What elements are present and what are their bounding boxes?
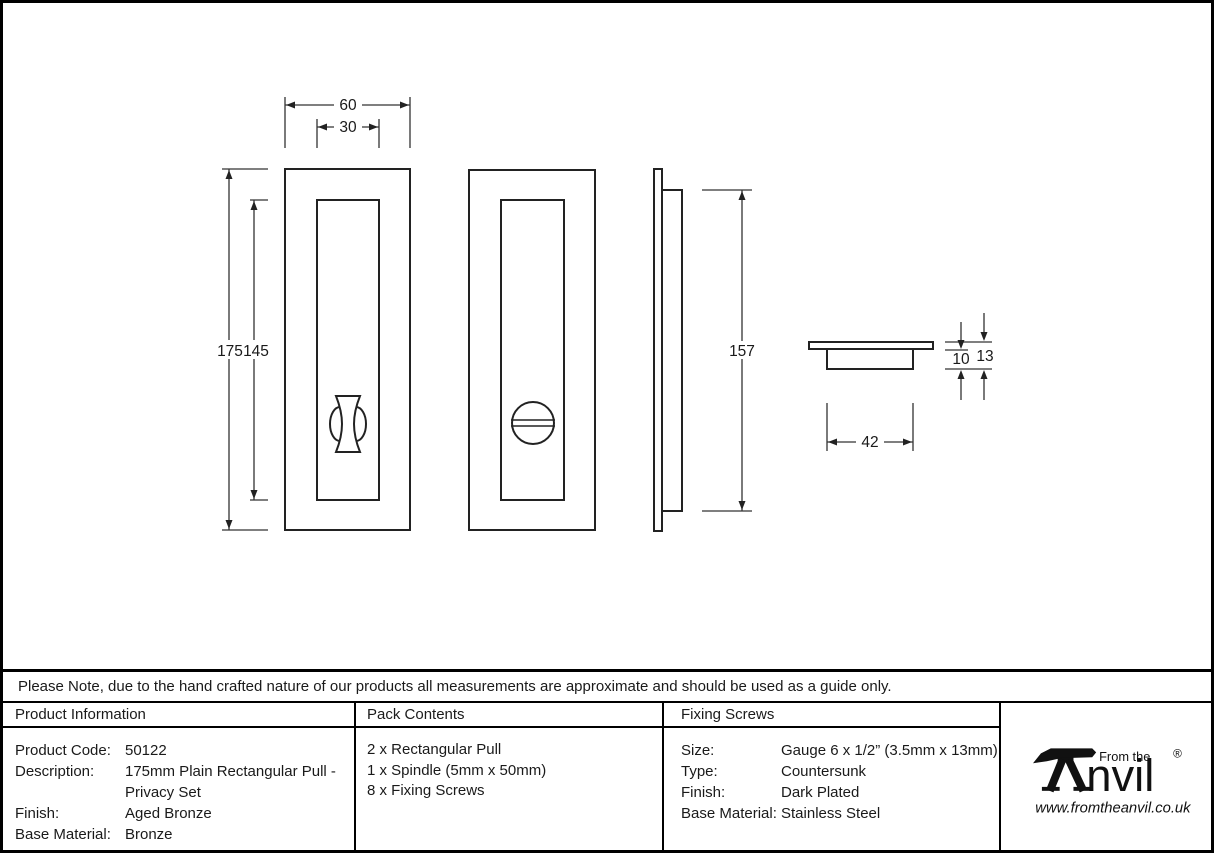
row-label: Type:	[681, 761, 781, 782]
thumbturn-shape	[336, 396, 360, 452]
dimension-arrowheads	[226, 102, 988, 530]
screw-type-row: Type: Countersunk	[681, 761, 999, 782]
product-info-table: Product Information Product Code: 50122 …	[0, 703, 1214, 853]
dim-total-depth: 13	[976, 348, 993, 365]
row-label	[15, 782, 125, 803]
row-value: 50122	[125, 740, 167, 761]
dimension-label-backgrounds	[213, 96, 997, 450]
brand-logo-cell: From the nvil ® www.fromtheanvil.co.uk	[1001, 703, 1214, 853]
product-drawing-sheet: 60 30 175 145 157 42 10 13 Please Note, …	[0, 0, 1214, 853]
pack-contents-header: Pack Contents	[356, 703, 662, 728]
row-label: Finish:	[15, 803, 125, 824]
fixing-screws-column: Fixing Screws Size: Gauge 6 x 1/2” (3.5m…	[664, 703, 1001, 853]
row-value: Bronze	[125, 824, 173, 845]
dimension-labels: 60 30 175 145 157 42 10 13	[217, 97, 994, 451]
logo-brand-text: nvil	[1086, 749, 1154, 800]
row-value: Countersunk	[781, 761, 866, 782]
dim-width-inner: 30	[339, 119, 357, 136]
screw-size-row: Size: Gauge 6 x 1/2” (3.5mm x 13mm)	[681, 740, 999, 761]
product-information-body: Product Code: 50122 Description: 175mm P…	[0, 728, 354, 845]
screw-base-material-row: Base Material: Stainless Steel	[681, 803, 999, 824]
row-label: Description:	[15, 761, 125, 782]
product-information-column: Product Information Product Code: 50122 …	[0, 703, 356, 853]
pull-side-view	[654, 169, 682, 531]
dim-cup-depth: 10	[952, 351, 970, 368]
logo-url-text: www.fromtheanvil.co.uk	[1035, 800, 1192, 816]
fixing-screws-header: Fixing Screws	[664, 703, 999, 728]
pull-front-coinslot-view	[469, 170, 595, 530]
row-label: Base Material:	[681, 803, 781, 824]
pack-item: 8 x Fixing Screws	[367, 781, 662, 802]
row-value: Privacy Set	[125, 782, 201, 803]
pack-item: 2 x Rectangular Pull	[367, 740, 662, 761]
row-value: Gauge 6 x 1/2” (3.5mm x 13mm)	[781, 740, 998, 761]
technical-drawing: 60 30 175 145 157 42 10 13	[0, 0, 1214, 672]
row-label: Base Material:	[15, 824, 125, 845]
product-information-header: Product Information	[0, 703, 354, 728]
dimension-lines	[222, 97, 992, 530]
pack-contents-column: Pack Contents 2 x Rectangular Pull 1 x S…	[356, 703, 664, 853]
pack-item: 1 x Spindle (5mm x 50mm)	[367, 761, 662, 782]
description-row-line2: Privacy Set	[15, 782, 354, 803]
dim-width-outer: 60	[339, 97, 357, 114]
row-value: Aged Bronze	[125, 803, 212, 824]
base-material-row: Base Material: Bronze	[15, 824, 354, 845]
pack-contents-body: 2 x Rectangular Pull 1 x Spindle (5mm x …	[356, 728, 662, 802]
screw-finish-row: Finish: Dark Plated	[681, 782, 999, 803]
row-label: Size:	[681, 740, 781, 761]
row-value: Dark Plated	[781, 782, 859, 803]
from-the-anvil-logo: From the nvil ® www.fromtheanvil.co.uk	[1002, 706, 1213, 851]
measurement-note-text: Please Note, due to the hand crafted nat…	[18, 678, 892, 695]
fixing-screws-body: Size: Gauge 6 x 1/2” (3.5mm x 13mm) Type…	[664, 728, 999, 824]
dim-cup-width: 42	[861, 434, 878, 451]
description-row: Description: 175mm Plain Rectangular Pul…	[15, 761, 354, 782]
dim-height-inner: 145	[243, 343, 269, 360]
row-value: Stainless Steel	[781, 803, 880, 824]
dim-side-height: 157	[729, 343, 755, 360]
row-value: 175mm Plain Rectangular Pull -	[125, 761, 336, 782]
registered-trademark-symbol: ®	[1173, 746, 1182, 760]
row-label: Finish:	[681, 782, 781, 803]
finish-row: Finish: Aged Bronze	[15, 803, 354, 824]
coin-slot-release	[512, 402, 554, 444]
measurement-note-row: Please Note, due to the hand crafted nat…	[0, 669, 1214, 703]
dim-height-outer: 175	[217, 343, 243, 360]
pull-front-thumbturn-view	[285, 169, 410, 530]
row-label: Product Code:	[15, 740, 125, 761]
pull-top-view	[809, 342, 933, 369]
product-code-row: Product Code: 50122	[15, 740, 354, 761]
